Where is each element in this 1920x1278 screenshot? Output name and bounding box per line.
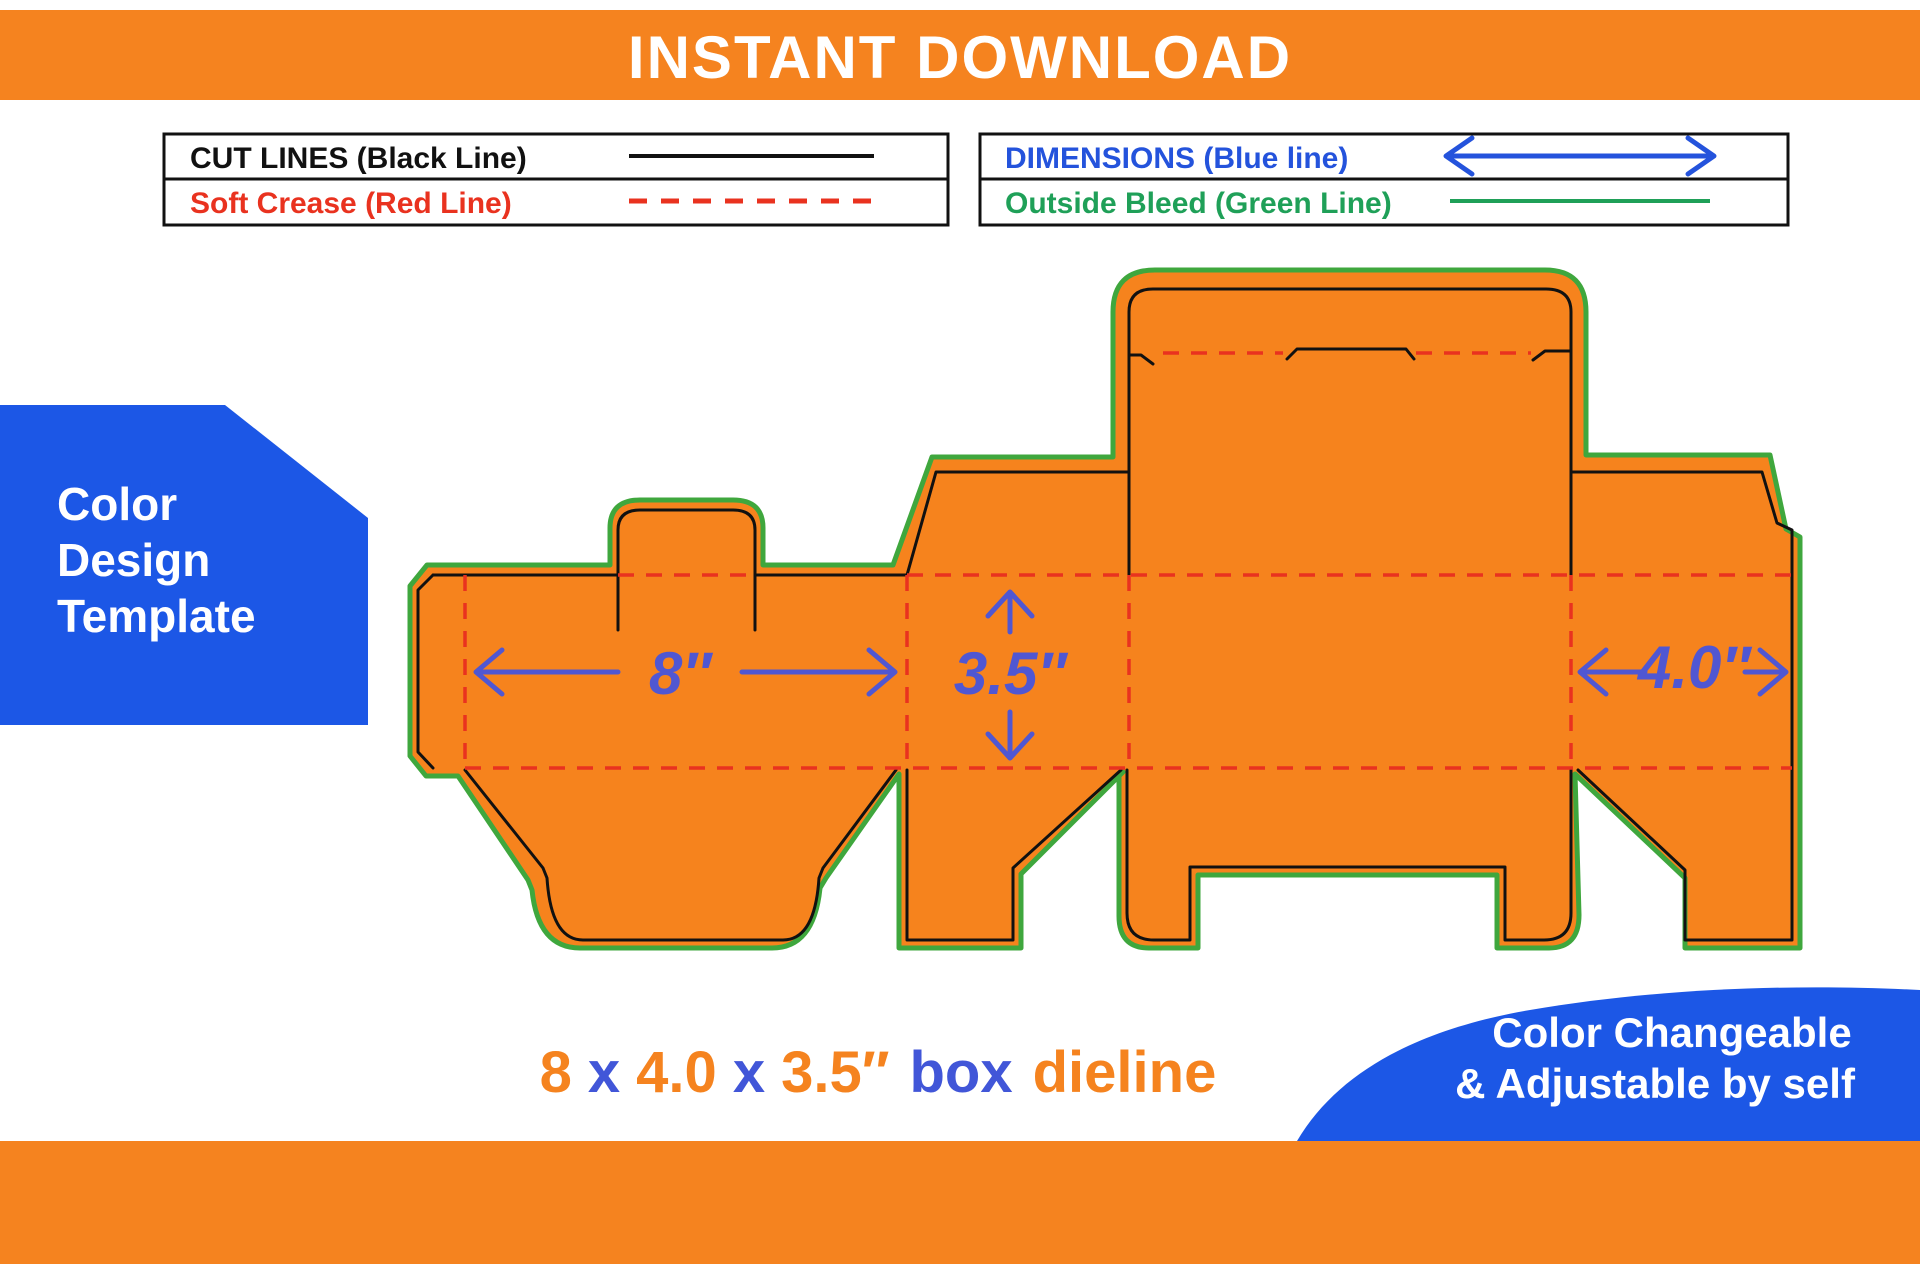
- title-part-7: dieline: [1033, 1040, 1217, 1105]
- title-part-3: 4.0: [636, 1040, 717, 1105]
- side-dimension-label: 4.0″: [1637, 634, 1752, 701]
- title-part-1: 8: [540, 1040, 572, 1105]
- title-part-2: x: [588, 1040, 620, 1105]
- title-part-6: box: [910, 1040, 1013, 1105]
- header-title: INSTANT DOWNLOAD: [628, 24, 1292, 91]
- legend-dimensions-label: DIMENSIONS (Blue line): [1005, 142, 1348, 175]
- page-title: 8x4.0x3.5″boxdieline: [540, 1040, 1217, 1105]
- legend-annotation-types: DIMENSIONS (Blue line) Outside Bleed (Gr…: [980, 134, 1788, 225]
- legend-outside-bleed-label: Outside Bleed (Green Line): [1005, 187, 1392, 220]
- badge-line-3: Template: [57, 590, 256, 642]
- width-dimension-label: 8″: [649, 640, 713, 707]
- legend-cut-lines-label: CUT LINES (Black Line): [190, 142, 527, 175]
- badge-line-1: Color: [57, 478, 177, 530]
- poster: INSTANT DOWNLOAD CUT LINES (Black Line) …: [0, 0, 1920, 1278]
- title-part-4: x: [733, 1040, 765, 1105]
- note-line-2: & Adjustable by self: [1455, 1060, 1856, 1107]
- title-part-5: 3.5″: [781, 1040, 889, 1105]
- note-line-1: Color Changeable: [1492, 1009, 1851, 1056]
- footer-banner: [0, 1141, 1920, 1264]
- legend-line-types: CUT LINES (Black Line) Soft Crease (Red …: [164, 134, 948, 225]
- badge-line-2: Design: [57, 534, 210, 586]
- height-dimension-label: 3.5″: [954, 640, 1068, 707]
- legend-soft-crease-label: Soft Crease (Red Line): [190, 187, 512, 220]
